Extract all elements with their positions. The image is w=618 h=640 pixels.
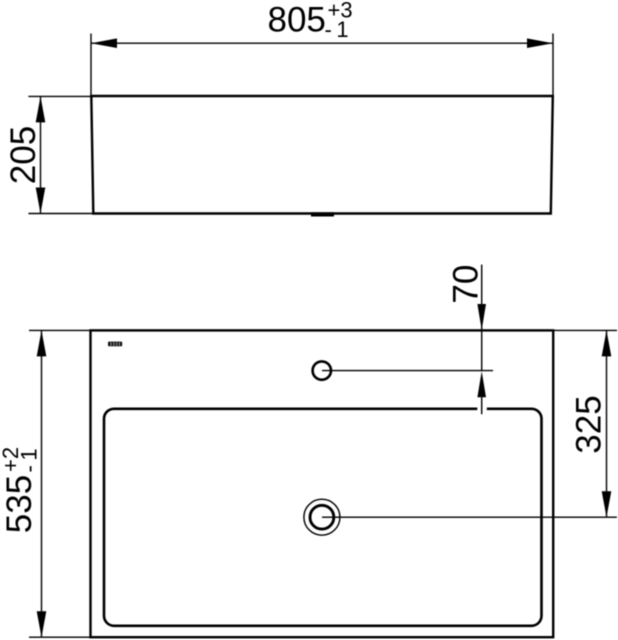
svg-text:-1: -1 — [17, 444, 42, 473]
svg-text:-1: -1 — [325, 17, 354, 42]
svg-text:325: 325 — [570, 395, 609, 453]
svg-text:535: 535 — [0, 475, 39, 533]
svg-text:70: 70 — [446, 265, 485, 304]
svg-text:805: 805 — [268, 1, 326, 40]
svg-text:205: 205 — [4, 126, 43, 184]
